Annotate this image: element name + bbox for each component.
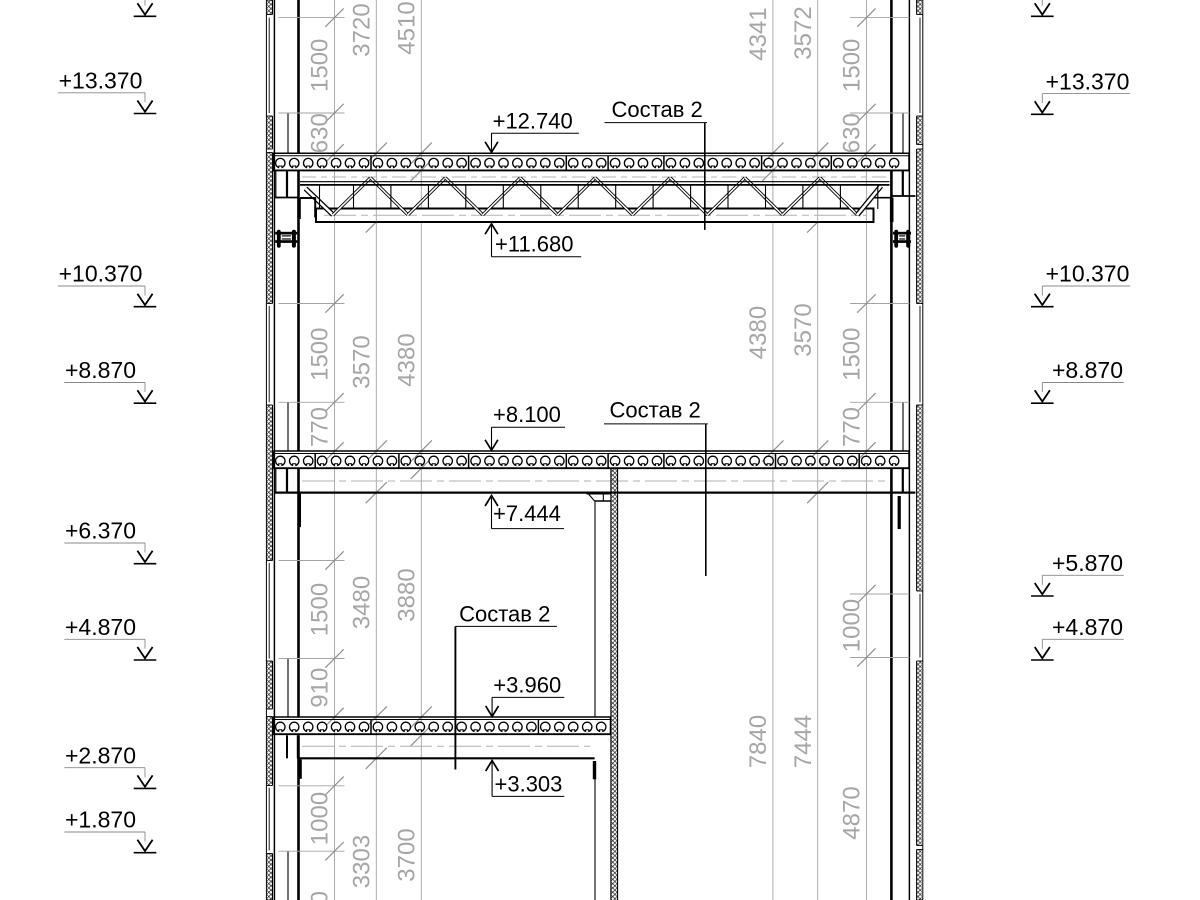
svg-text:4870: 4870 — [839, 786, 866, 839]
svg-text:910: 910 — [307, 668, 334, 708]
svg-text:1500: 1500 — [307, 328, 334, 381]
svg-text:630: 630 — [839, 113, 866, 153]
svg-text:+1.870: +1.870 — [65, 807, 136, 833]
svg-text:3880: 3880 — [394, 568, 421, 621]
svg-text:3480: 3480 — [349, 576, 376, 629]
svg-text:4341: 4341 — [745, 7, 772, 60]
svg-text:+8.100: +8.100 — [493, 402, 561, 427]
svg-text:+7.444: +7.444 — [493, 501, 561, 526]
svg-text:4510: 4510 — [394, 1, 421, 54]
svg-text:Состав 2: Состав 2 — [459, 601, 550, 626]
svg-text:3700: 3700 — [394, 828, 421, 881]
svg-text:+10.370: +10.370 — [59, 261, 143, 287]
svg-text:1000: 1000 — [839, 599, 866, 652]
svg-text:+8.870: +8.870 — [1052, 357, 1123, 383]
svg-text:7840: 7840 — [745, 715, 772, 768]
svg-text:Состав 2: Состав 2 — [612, 97, 703, 122]
svg-text:3570: 3570 — [790, 303, 817, 356]
svg-text:+5.870: +5.870 — [1052, 550, 1123, 576]
svg-text:770: 770 — [307, 407, 334, 447]
svg-text:+2.870: +2.870 — [65, 742, 136, 768]
svg-text:4380: 4380 — [394, 333, 421, 386]
svg-text:1500: 1500 — [839, 328, 866, 381]
svg-text:+6.370: +6.370 — [65, 518, 136, 544]
svg-text:3570: 3570 — [349, 335, 376, 388]
svg-text:1500: 1500 — [839, 39, 866, 92]
svg-text:+10.370: +10.370 — [1046, 261, 1130, 287]
svg-text:3303: 3303 — [349, 835, 376, 888]
svg-text:1500: 1500 — [307, 583, 334, 636]
svg-text:+12.740: +12.740 — [493, 108, 573, 133]
svg-text:4380: 4380 — [745, 306, 772, 359]
svg-text:+13.370: +13.370 — [1046, 68, 1130, 94]
svg-text:+4.870: +4.870 — [1052, 614, 1123, 640]
svg-text:3720: 3720 — [349, 3, 376, 56]
svg-text:+11.680: +11.680 — [495, 232, 574, 257]
svg-text:+4.870: +4.870 — [65, 614, 136, 640]
svg-text:+3.960: +3.960 — [493, 673, 561, 698]
svg-text:+3.303: +3.303 — [495, 772, 563, 797]
svg-text:3572: 3572 — [790, 6, 817, 59]
svg-text:+8.870: +8.870 — [65, 357, 136, 383]
svg-text:770: 770 — [839, 407, 866, 447]
svg-text:630: 630 — [307, 113, 334, 153]
svg-text:1500: 1500 — [307, 39, 334, 92]
svg-text:Состав 2: Состав 2 — [610, 398, 701, 423]
svg-text:970: 970 — [307, 891, 334, 900]
svg-text:+13.370: +13.370 — [59, 68, 143, 94]
svg-text:1000: 1000 — [307, 792, 334, 845]
svg-text:7444: 7444 — [790, 715, 817, 768]
